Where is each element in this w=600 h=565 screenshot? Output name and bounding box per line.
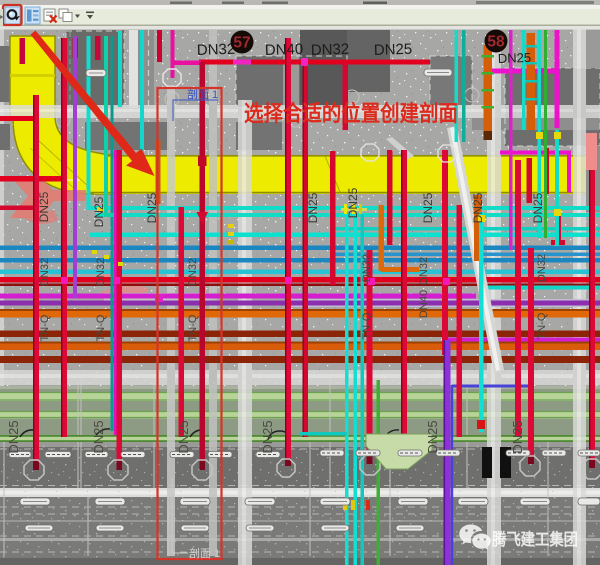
svg-text:TN-Q: TN-Q bbox=[536, 312, 548, 339]
svg-text:DN32: DN32 bbox=[39, 258, 51, 286]
svg-text:DN25: DN25 bbox=[421, 192, 435, 223]
svg-text:DN25: DN25 bbox=[306, 192, 320, 223]
svg-text:DN25: DN25 bbox=[346, 187, 360, 218]
svg-text:DN25: DN25 bbox=[531, 192, 545, 223]
svg-text:DN32: DN32 bbox=[95, 258, 107, 286]
svg-text:DN25: DN25 bbox=[425, 420, 440, 453]
svg-text:DN25: DN25 bbox=[374, 41, 413, 59]
svg-text:DN25: DN25 bbox=[498, 50, 532, 66]
svg-text:TN-Q: TN-Q bbox=[187, 314, 199, 341]
svg-text:TN-Q: TN-Q bbox=[39, 314, 51, 341]
svg-text:DN32: DN32 bbox=[311, 41, 350, 59]
svg-text:选择合适的位置创建剖面: 选择合适的位置创建剖面 bbox=[244, 101, 458, 126]
svg-text:剖面 1: 剖面 1 bbox=[189, 546, 220, 560]
svg-text:DN25: DN25 bbox=[471, 192, 485, 223]
svg-text:57: 57 bbox=[233, 35, 250, 52]
svg-text:58: 58 bbox=[487, 34, 505, 51]
svg-text:DN25: DN25 bbox=[260, 420, 275, 453]
svg-text:DN25: DN25 bbox=[92, 196, 106, 227]
svg-text:DN32: DN32 bbox=[418, 257, 430, 285]
svg-text:DN25: DN25 bbox=[37, 191, 51, 222]
svg-text:DN25: DN25 bbox=[510, 420, 525, 453]
svg-text:DN32: DN32 bbox=[361, 254, 373, 282]
svg-text:DN32: DN32 bbox=[197, 41, 236, 59]
svg-text:DN40: DN40 bbox=[265, 41, 304, 59]
svg-text:剖面 1: 剖面 1 bbox=[187, 87, 218, 101]
svg-text:DN25: DN25 bbox=[176, 420, 191, 453]
svg-text:TN-Q: TN-Q bbox=[95, 314, 107, 341]
svg-text:DN25: DN25 bbox=[91, 420, 106, 453]
svg-text:DN32: DN32 bbox=[536, 254, 548, 282]
svg-text:DN25: DN25 bbox=[6, 420, 21, 453]
svg-text:TN-Q: TN-Q bbox=[361, 312, 373, 339]
svg-text:DN40: DN40 bbox=[418, 290, 430, 318]
svg-text:腾飞建工集团: 腾飞建工集团 bbox=[492, 529, 578, 549]
svg-text:DN32: DN32 bbox=[187, 258, 199, 286]
